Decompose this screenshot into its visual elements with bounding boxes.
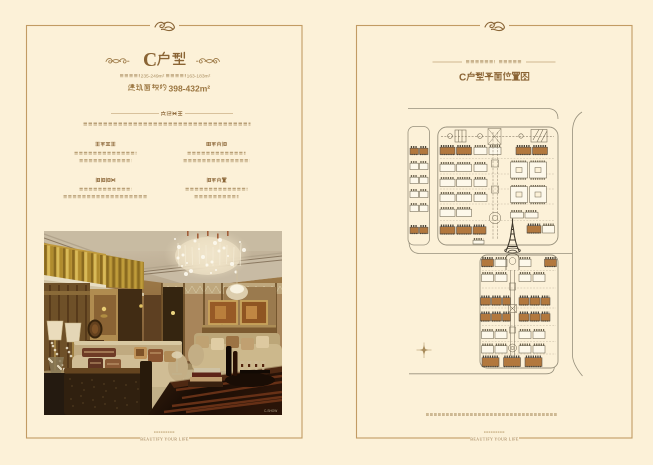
svg-text:BEAUTIFY YOUR LIFE: BEAUTIFY YOUR LIFE [470, 436, 519, 441]
svg-text:C: C [459, 73, 466, 84]
